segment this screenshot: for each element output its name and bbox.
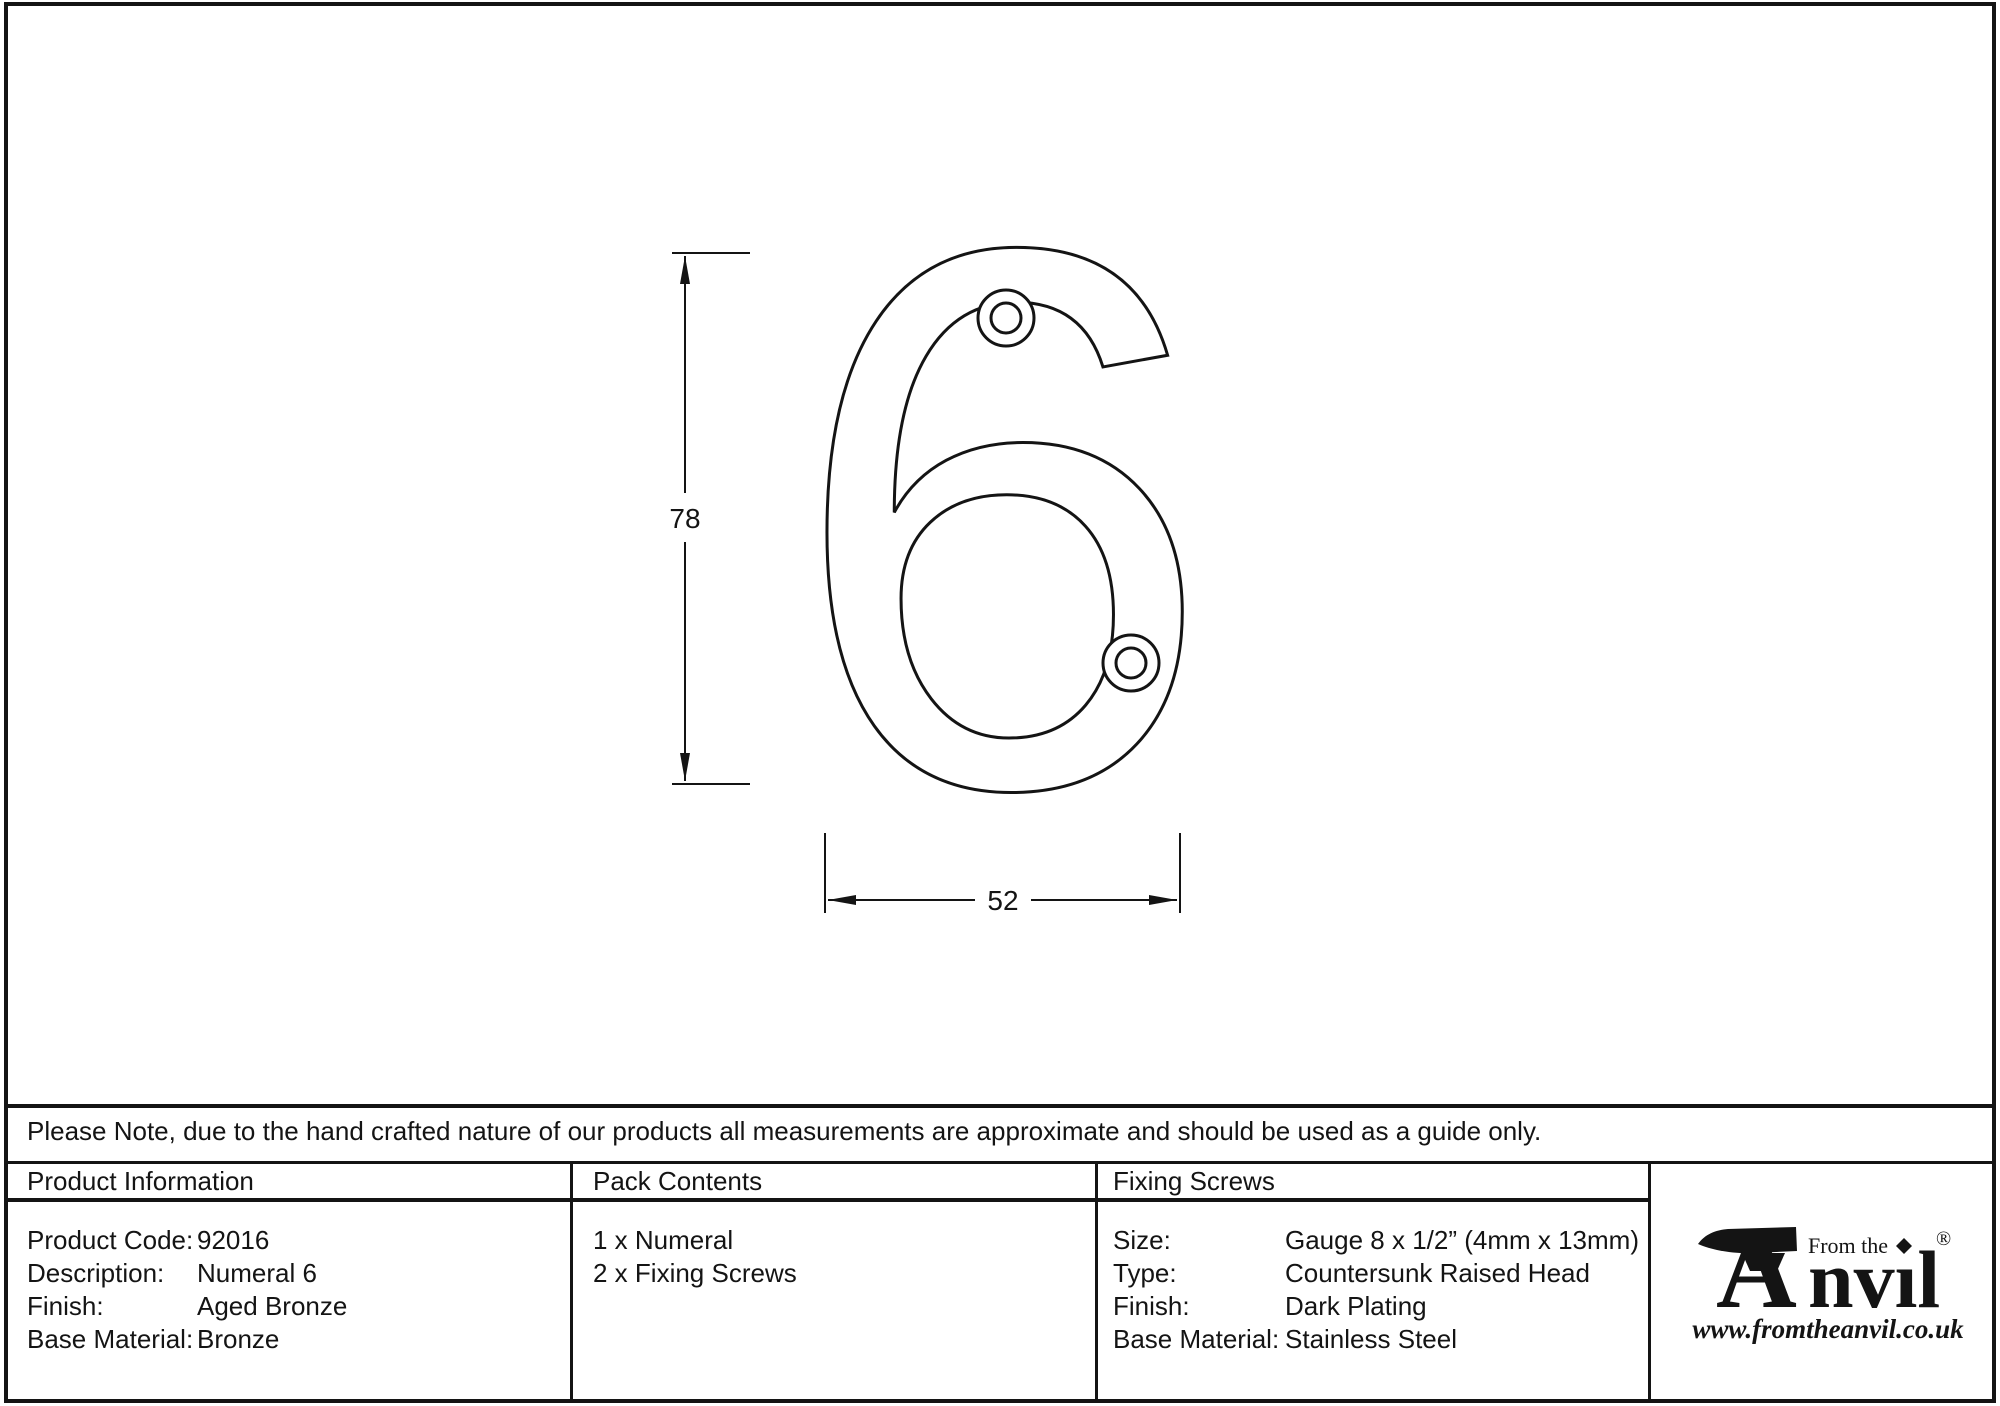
- size-label: Size:: [1113, 1224, 1279, 1257]
- registered-trademark-icon: ®: [1936, 1228, 1951, 1250]
- pack-item: 1 x Numeral: [593, 1224, 797, 1257]
- product-code-value: 92016: [197, 1224, 347, 1257]
- anvil-icon: [1698, 1227, 1797, 1253]
- screw-finish-value: Dark Plating: [1285, 1290, 1639, 1323]
- width-dimension-label: 52: [987, 885, 1018, 916]
- screw-base-material-value: Stainless Steel: [1285, 1323, 1639, 1356]
- logo-website: www.fromtheanvil.co.uk: [1692, 1314, 1964, 1344]
- column-divider-1: [570, 1164, 573, 1400]
- pack-contents-list: 1 x Numeral 2 x Fixing Screws: [593, 1224, 797, 1290]
- description-value: Numeral 6: [197, 1257, 347, 1290]
- product-code-label: Product Code:: [27, 1224, 193, 1257]
- header-row-bottom-border: [8, 1198, 1650, 1202]
- pack-contents-header: Pack Contents: [593, 1168, 762, 1194]
- screw-finish-label: Finish:: [1113, 1290, 1279, 1323]
- size-value: Gauge 8 x 1/2” (4mm x 13mm): [1285, 1224, 1639, 1257]
- base-material-value: Bronze: [197, 1323, 347, 1356]
- description-label: Description:: [27, 1257, 193, 1290]
- measurement-note: Please Note, due to the hand crafted nat…: [27, 1118, 1541, 1144]
- height-dimension-label: 78: [669, 503, 700, 534]
- spec-sheet: 6 78 52 Pleas: [0, 0, 2000, 1406]
- base-material-label: Base Material:: [27, 1323, 193, 1356]
- product-info-values: 92016 Numeral 6 Aged Bronze Bronze: [197, 1224, 347, 1356]
- product-info-labels: Product Code: Description: Finish: Base …: [27, 1224, 193, 1356]
- screw-hole-top-inner: [991, 303, 1021, 333]
- finish-label: Finish:: [27, 1290, 193, 1323]
- type-label: Type:: [1113, 1257, 1279, 1290]
- product-information-header: Product Information: [27, 1168, 254, 1194]
- note-row-top-border: [8, 1104, 1992, 1108]
- technical-drawing: 6 78 52: [0, 0, 2000, 1100]
- screw-base-material-label: Base Material:: [1113, 1323, 1279, 1356]
- fixing-screws-header: Fixing Screws: [1113, 1168, 1275, 1194]
- arrow-down-icon: [680, 753, 690, 781]
- type-value: Countersunk Raised Head: [1285, 1257, 1639, 1290]
- fixing-screws-values: Gauge 8 x 1/2” (4mm x 13mm) Countersunk …: [1285, 1224, 1639, 1356]
- from-the-anvil-logo: A nvıl From the ® www.fromtheanvil.co.uk: [1650, 1161, 1992, 1400]
- screw-hole-bottom-inner: [1116, 648, 1146, 678]
- pack-item: 2 x Fixing Screws: [593, 1257, 797, 1290]
- numeral-outline: 6: [788, 89, 1216, 949]
- logo-tagline: From the: [1808, 1233, 1888, 1258]
- arrow-up-icon: [680, 256, 690, 284]
- fixing-screws-labels: Size: Type: Finish: Base Material:: [1113, 1224, 1279, 1356]
- finish-value: Aged Bronze: [197, 1290, 347, 1323]
- column-divider-2: [1095, 1164, 1098, 1400]
